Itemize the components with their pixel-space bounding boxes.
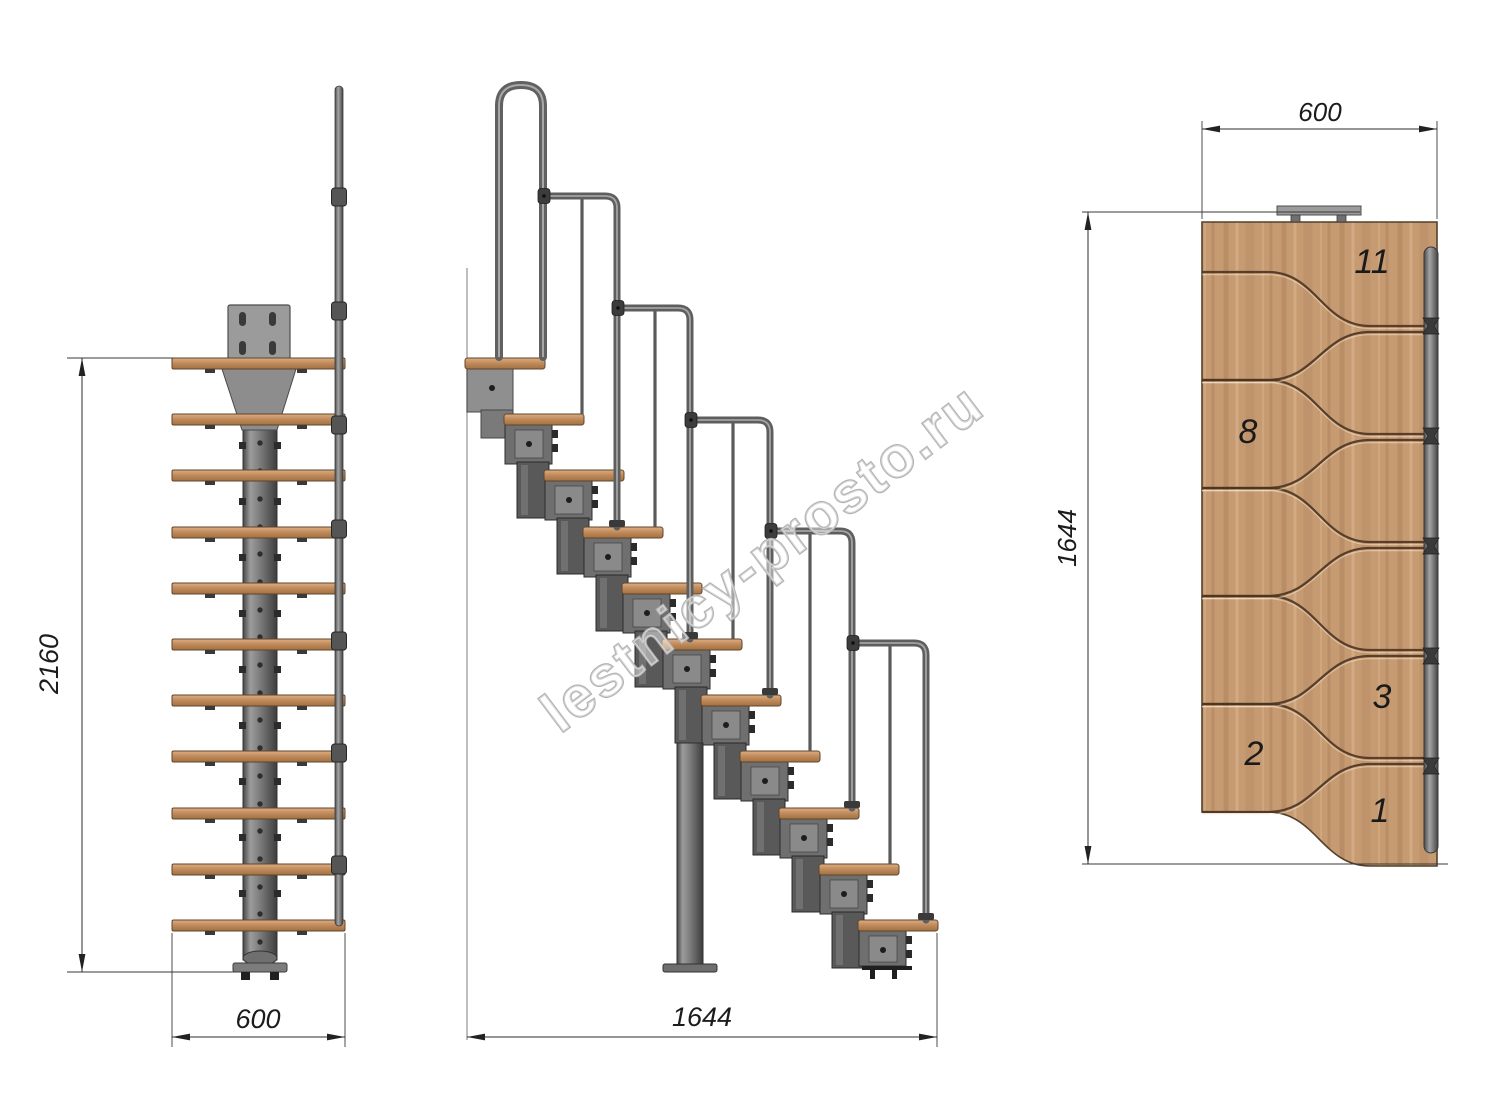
rail-clamp-bolt [616,306,620,310]
tread-clamp [297,538,307,542]
front-tread [172,639,345,650]
column-bolt [239,666,246,673]
module-riser-highlight [836,915,843,965]
tread-clamp [205,369,215,373]
tread-clamp [297,875,307,879]
tread-clamp [297,594,307,598]
front-height-value: 2160 [34,634,64,695]
module-tab [788,767,794,775]
top-mounting-plate [1277,206,1361,222]
module-tab [631,543,637,551]
post-coupler [332,302,347,320]
module-riser-highlight [600,578,607,628]
staircase-technical-drawing: 2160 600 [0,0,1500,1114]
column-bolt [239,834,246,841]
side-tread [819,864,899,875]
module-bolt [841,891,847,897]
module-tab [906,936,912,944]
dimension-arrow [467,1034,485,1041]
column-bolt [239,610,246,617]
side-tread [465,358,545,369]
front-width-value: 600 [235,1004,280,1034]
column-bolt [239,722,246,729]
module-bolt [684,666,690,672]
side-support-column [663,743,717,972]
tread-clamp [297,762,307,766]
column-hole [257,717,262,722]
module-tab [867,894,873,902]
module-foot-bolt [870,970,875,979]
column-bolt [239,890,246,897]
front-handrail-post [335,86,343,926]
top-width-value: 600 [1298,97,1342,127]
column-hole [257,884,262,889]
post-coupler [332,416,347,434]
rail-foot [762,688,778,695]
column-hole [257,551,262,556]
module-tab [749,711,755,719]
tread-clamp [297,369,307,373]
side-tread [583,527,663,538]
front-tread [172,808,345,819]
front-tread [172,920,345,931]
front-dim-height: 2160 [34,358,236,972]
post-coupler [332,520,347,538]
post-coupler [332,188,347,206]
top-view: 118321 600 1644 [1052,97,1448,866]
front-tread [172,470,345,481]
module-tab [906,950,912,958]
module-bolt [762,778,768,784]
column-hole [257,662,262,667]
front-tread [172,583,345,594]
side-tread [779,808,859,819]
column-hole [257,828,262,833]
tread-number: 8 [1239,413,1258,451]
column-bolt [274,554,281,561]
tread-clamp [205,650,215,654]
module-bolt [723,722,729,728]
rail-clamp-bolt [851,641,855,645]
dimension-arrow [327,1034,345,1041]
tread-clamp [297,931,307,935]
tread-clamp [297,819,307,823]
dimension-arrow [1085,846,1092,864]
top-length-value: 1644 [1052,509,1082,567]
column-bolt [274,498,281,505]
module-bolt [880,947,886,953]
tread-clamp [205,875,215,879]
module-foot-bolt [892,970,897,979]
module-riser-highlight [718,746,725,796]
column-bolt [274,442,281,449]
module-tab [552,430,558,438]
column-hole [257,911,262,916]
tread-clamp [297,650,307,654]
module-bolt [526,441,532,447]
front-base-plate [233,951,287,980]
column-bolt [274,722,281,729]
module-tab [749,725,755,733]
dimension-arrow [1085,212,1092,230]
column-bolt [239,554,246,561]
dimension-arrow [919,1034,937,1041]
module-tab [710,655,716,663]
module-tab [552,444,558,452]
front-tread [172,751,345,762]
module-riser-highlight [521,465,528,515]
column-bolt [239,442,246,449]
dimension-arrow [1202,126,1220,133]
rail-clamp-bolt [689,418,693,422]
tread-clamp [297,706,307,710]
dimension-arrow [79,358,86,376]
front-tread [172,358,345,369]
front-tread [172,527,345,538]
module-tab [788,781,794,789]
post-coupler [332,632,347,650]
dimension-arrow [79,954,86,972]
column-hole [257,939,262,944]
column-bolt [239,778,246,785]
front-tread [172,864,345,875]
module-tab [592,486,598,494]
rail-foot [844,801,860,808]
module-riser-highlight [796,859,803,909]
module-tab [867,880,873,888]
module-riser-highlight [757,802,764,852]
module-tab [827,838,833,846]
side-length-value: 1644 [672,1002,732,1032]
column-hole [257,801,262,806]
post-coupler [332,744,347,762]
tread-number: 2 [1244,735,1264,773]
side-tread [740,751,820,762]
tread-number: 11 [1354,243,1389,281]
side-handrail-loop [499,85,543,357]
drawing-svg: 2160 600 [0,0,1500,1114]
rail-foot [609,520,625,527]
column-bolt [274,610,281,617]
side-tread [544,470,624,481]
dimension-arrow [1419,126,1437,133]
front-view: 2160 600 [34,86,347,1047]
column-bolt [274,666,281,673]
top-dim-width: 600 [1202,97,1437,219]
post-coupler [332,856,347,874]
tread-clamp [297,425,307,429]
column-hole [257,440,262,445]
side-tread [504,414,584,425]
column-bolt [274,834,281,841]
module-tab [827,824,833,832]
module-riser-highlight [679,690,686,740]
module-foot-bar [862,966,912,970]
column-bolt [239,498,246,505]
column-hole [257,856,262,861]
tread-clamp [205,481,215,485]
column-bolt [274,890,281,897]
tread-clamp [297,481,307,485]
module-tab [710,669,716,677]
tread-clamp [205,931,215,935]
module-bolt [605,554,611,560]
module-bolt [566,497,572,503]
front-tread [172,695,345,706]
tread-clamp [205,706,215,710]
rail-foot [918,913,934,920]
front-tread [172,414,345,425]
column-bolt [274,778,281,785]
tread-clamp [205,594,215,598]
module-tab [631,557,637,565]
column-hole [257,773,262,778]
column-hole [257,607,262,612]
tread-clamp [205,538,215,542]
module-tab [592,500,598,508]
column-hole [257,496,262,501]
dimension-arrow [172,1034,190,1041]
tread-clamp [205,762,215,766]
tread-number: 3 [1373,678,1392,716]
tread-clamp [205,425,215,429]
column-hole [257,745,262,750]
tread-number: 1 [1371,792,1390,830]
tread-clamp [205,819,215,823]
module-bolt [801,835,807,841]
rail-clamp-bolt [542,194,546,198]
module-riser-highlight [561,521,568,571]
